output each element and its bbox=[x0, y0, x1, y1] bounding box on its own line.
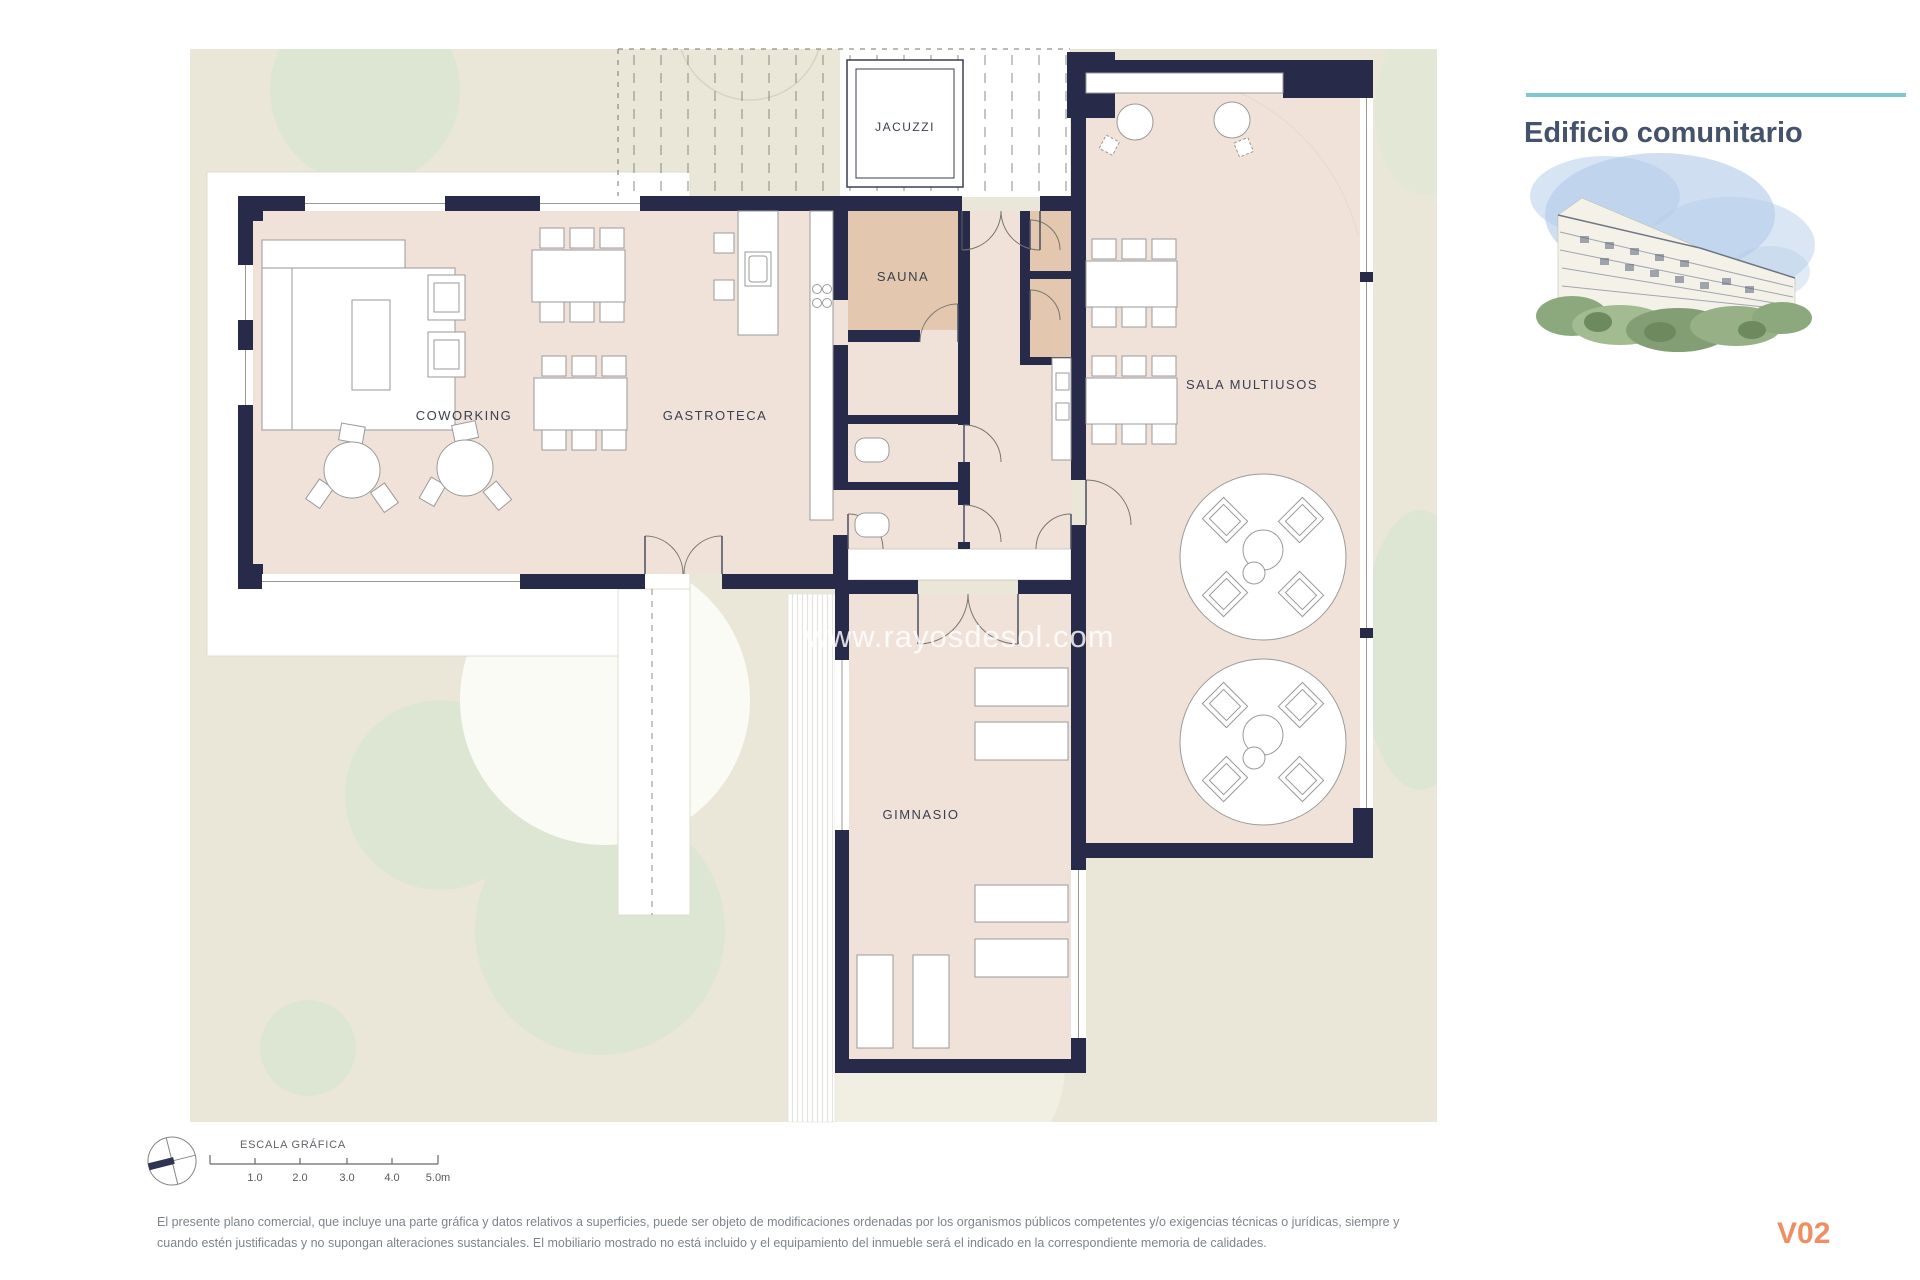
boardwalk-strip bbox=[788, 594, 835, 1122]
building-illustration bbox=[1530, 153, 1815, 352]
sink bbox=[1056, 373, 1069, 390]
porch-band bbox=[848, 549, 1071, 580]
scale-tick-5: 5.0m bbox=[426, 1172, 450, 1184]
room-label-jacuzzi: JACUZZI bbox=[875, 120, 935, 134]
scale-bar-heading: ESCALA GRÁFICA bbox=[240, 1138, 346, 1151]
sala-table-2 bbox=[1086, 356, 1177, 444]
scale-tick-4: 4.0 bbox=[384, 1172, 399, 1184]
room-label-sala-multiusos: SALA MULTIUSOS bbox=[1186, 377, 1318, 392]
seating-circle-1 bbox=[1180, 474, 1346, 640]
sala-table-1 bbox=[1086, 239, 1177, 327]
tree-circle bbox=[260, 1000, 356, 1096]
accent-rule bbox=[1526, 93, 1906, 97]
scale-tick-2: 2.0 bbox=[292, 1172, 307, 1184]
right-panel: Edificio comunitario bbox=[1524, 93, 1906, 352]
coffee-table bbox=[352, 300, 390, 390]
scale-tick-3: 3.0 bbox=[339, 1172, 354, 1184]
version-badge: V02 bbox=[1777, 1217, 1830, 1250]
sala-top-bench bbox=[1086, 73, 1283, 93]
toilet bbox=[855, 438, 889, 462]
plan-page: JACUZZI SAUNA COWORKING GASTROTECA SALA … bbox=[0, 0, 1920, 1280]
compass-needle bbox=[149, 1161, 174, 1167]
compass bbox=[143, 1132, 201, 1190]
room-label-sauna: SAUNA bbox=[877, 269, 929, 284]
jacuzzi-deck bbox=[618, 49, 1070, 197]
dining-table-1 bbox=[532, 228, 625, 322]
room-label-gimnasio: GIMNASIO bbox=[882, 807, 959, 822]
sofa-back bbox=[262, 240, 405, 268]
room-label-coworking: COWORKING bbox=[416, 408, 513, 423]
path-plot bbox=[618, 589, 690, 915]
disclaimer-line-1: El presente plano comercial, que incluye… bbox=[157, 1215, 1400, 1229]
sink bbox=[1056, 403, 1069, 420]
panel-title: Edificio comunitario bbox=[1524, 117, 1803, 149]
dining-table-2 bbox=[534, 356, 627, 450]
room-label-gastroteca: GASTROTECA bbox=[663, 408, 768, 423]
scale-bar: ESCALA GRÁFICA 1.0 2.0 3.0 4.0 5.0m bbox=[210, 1138, 450, 1184]
disclaimer-line-2: cuando estén justificadas y no supongan … bbox=[157, 1236, 1267, 1250]
seating-circle-2 bbox=[1180, 659, 1346, 825]
watermark-text: www.rayosdesol.com bbox=[804, 619, 1114, 654]
tree-blob bbox=[1362, 510, 1478, 790]
tree-blob bbox=[1375, 25, 1475, 195]
sofa-side bbox=[262, 268, 292, 430]
floorplan-canvas: JACUZZI SAUNA COWORKING GASTROTECA SALA … bbox=[0, 0, 1920, 1280]
footer: El presente plano comercial, que incluye… bbox=[157, 1215, 1830, 1250]
room-shower-a bbox=[1030, 211, 1071, 271]
toilet bbox=[855, 513, 889, 537]
scale-tick-1: 1.0 bbox=[247, 1172, 262, 1184]
deck-planks bbox=[618, 49, 1070, 197]
tree-circle bbox=[270, 0, 460, 185]
